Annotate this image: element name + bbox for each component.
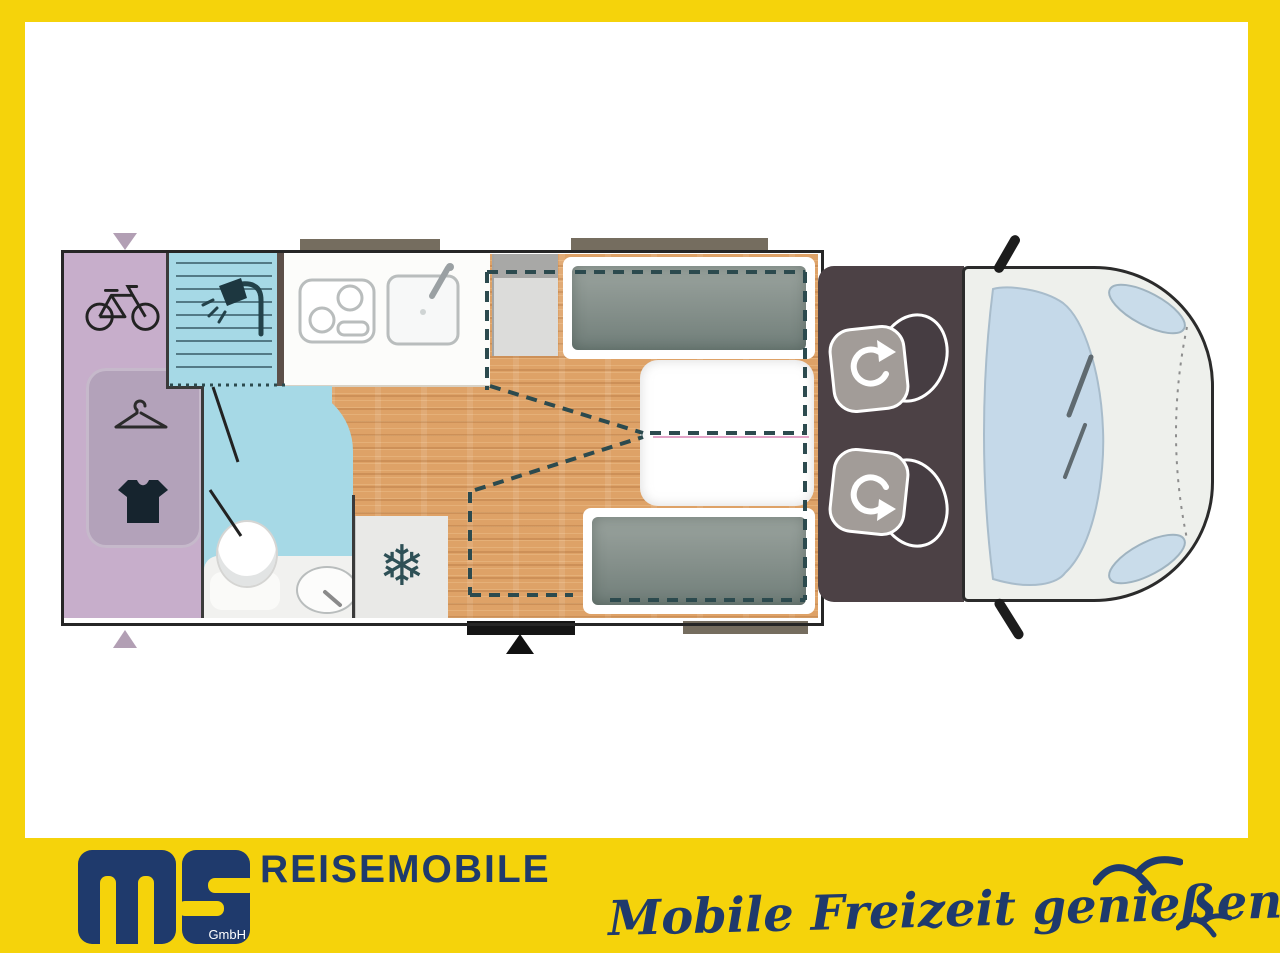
headlight (1102, 525, 1191, 593)
vehicle-front (962, 266, 1214, 602)
seagull-icon (1093, 852, 1183, 896)
bathroom-door (210, 387, 241, 536)
dashed-bed-extension (490, 386, 643, 433)
logo-subtext: GmbH (208, 927, 246, 942)
dashed-bed-extension (475, 437, 643, 490)
swivel-seat-driver (824, 310, 954, 425)
basin-faucet (325, 592, 340, 605)
ms-logo: GmbH (78, 850, 250, 944)
logo-m-block (78, 850, 176, 944)
swivel-seat-passenger (824, 436, 954, 551)
wordmark: REISEMOBILE (260, 848, 551, 892)
dashed-bed-extension (470, 492, 573, 595)
bottom-edge (0, 953, 1280, 959)
vent-arrow-top (113, 233, 137, 250)
front-graphics (965, 269, 1211, 599)
vent-arrow-bottom (113, 630, 137, 648)
plan-overlay (61, 228, 821, 660)
hood-contour (1176, 327, 1187, 539)
windscreen (984, 288, 1103, 585)
seat-base (828, 447, 910, 536)
advert-canvas: ❄ (0, 0, 1280, 959)
entry-arrow (506, 634, 534, 654)
slogan: Mobile Freizeit genießen. (607, 877, 1153, 947)
seat-base (828, 324, 910, 413)
seagull-icon (1176, 908, 1232, 938)
headlight (1102, 275, 1191, 343)
dashed-cabinet-outline (487, 272, 560, 390)
